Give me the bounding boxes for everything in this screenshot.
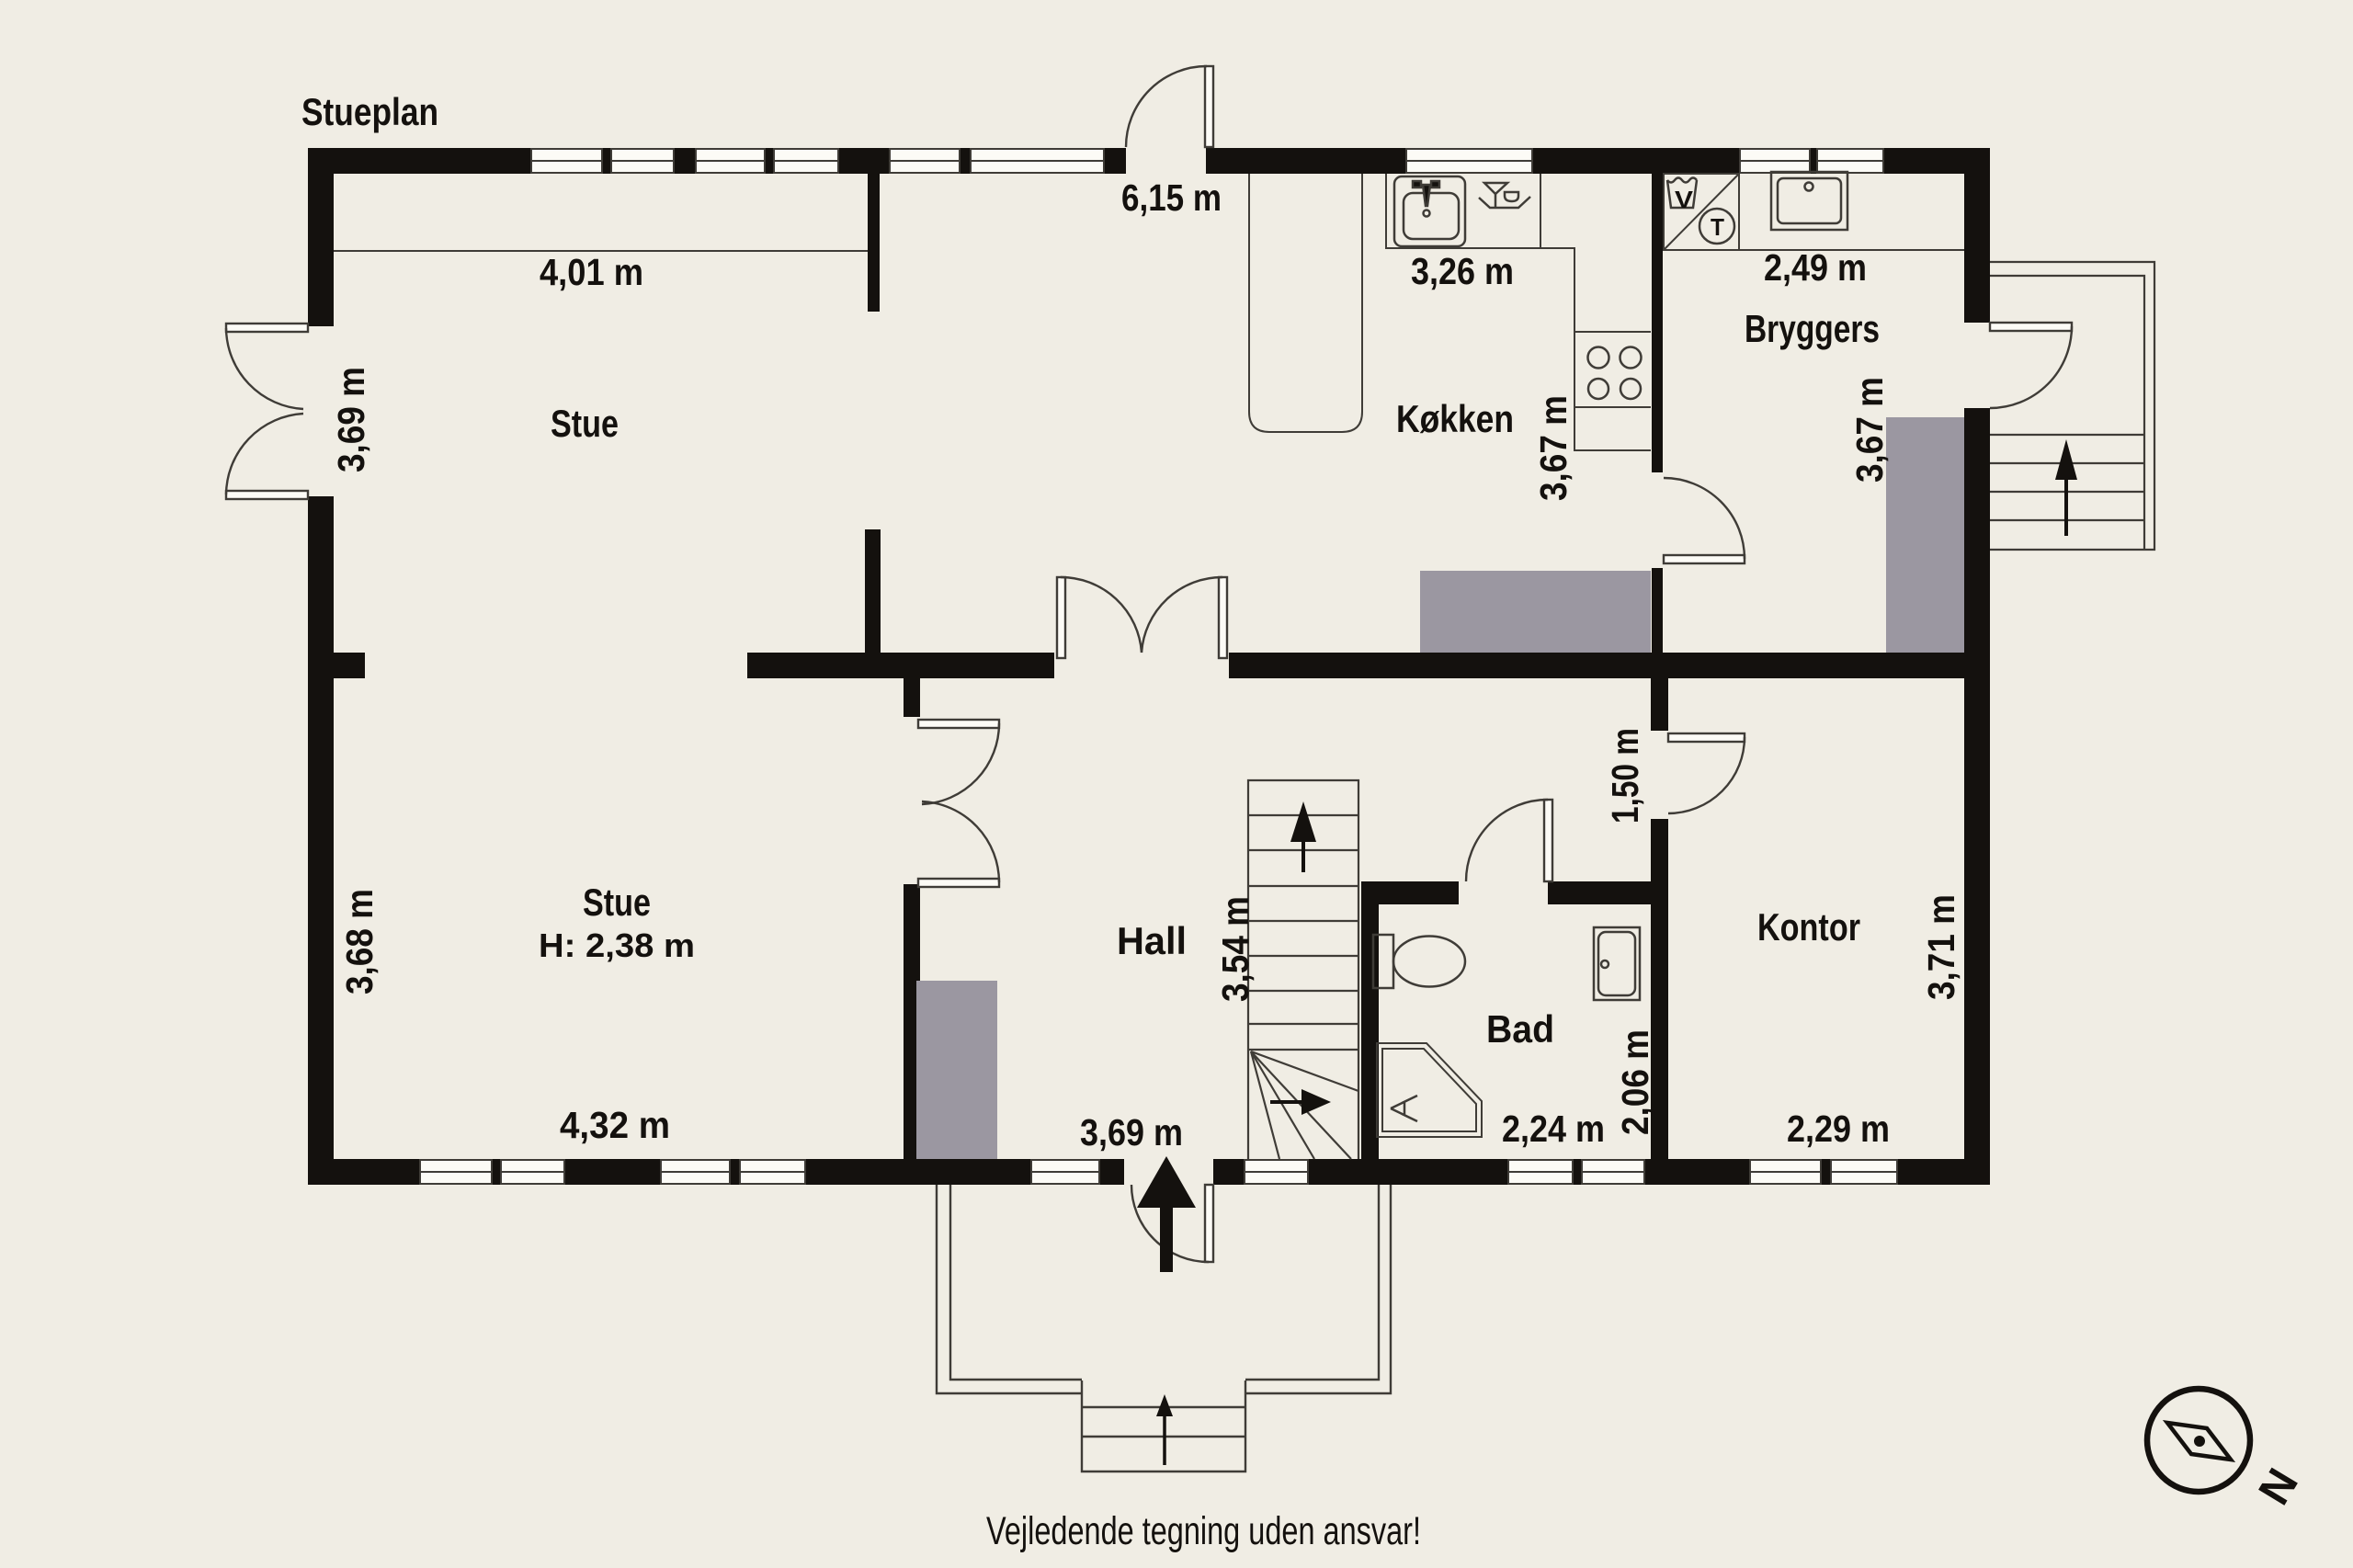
svg-text:3,67 m: 3,67 m (1848, 377, 1891, 483)
svg-text:Bryggers: Bryggers (1745, 307, 1880, 350)
svg-text:H: 2,38 m: H: 2,38 m (539, 926, 695, 964)
svg-text:Stue: Stue (551, 402, 619, 445)
svg-text:Kontor: Kontor (1757, 905, 1860, 949)
svg-text:3,69 m: 3,69 m (1080, 1111, 1183, 1153)
svg-text:Hall: Hall (1117, 919, 1187, 962)
svg-text:3,68 m: 3,68 m (338, 889, 381, 994)
svg-text:4,01 m: 4,01 m (540, 251, 643, 293)
svg-text:2,24 m: 2,24 m (1502, 1108, 1605, 1150)
svg-text:3,26 m: 3,26 m (1411, 250, 1514, 292)
svg-text:3,71 m: 3,71 m (1920, 894, 1962, 1000)
svg-text:Stue: Stue (583, 881, 651, 924)
svg-text:T: T (1711, 213, 1724, 241)
svg-text:V: V (1675, 186, 1694, 213)
svg-text:1,50 m: 1,50 m (1604, 728, 1646, 824)
svg-text:2,49 m: 2,49 m (1764, 246, 1867, 289)
svg-text:4,32 m: 4,32 m (560, 1104, 670, 1146)
svg-text:3,67 m: 3,67 m (1532, 395, 1574, 501)
svg-text:Køkken: Køkken (1396, 397, 1514, 440)
svg-text:3,54 m: 3,54 m (1214, 896, 1256, 1002)
svg-text:Bad: Bad (1486, 1007, 1554, 1051)
svg-text:3,69 m: 3,69 m (330, 367, 372, 472)
svg-text:2,29 m: 2,29 m (1787, 1108, 1890, 1150)
svg-text:6,15 m: 6,15 m (1121, 176, 1222, 219)
svg-text:Stueplan: Stueplan (301, 90, 438, 133)
svg-text:Vejledende tegning uden ansvar: Vejledende tegning uden ansvar! (986, 1509, 1421, 1553)
svg-text:2,06 m: 2,06 m (1614, 1029, 1656, 1135)
